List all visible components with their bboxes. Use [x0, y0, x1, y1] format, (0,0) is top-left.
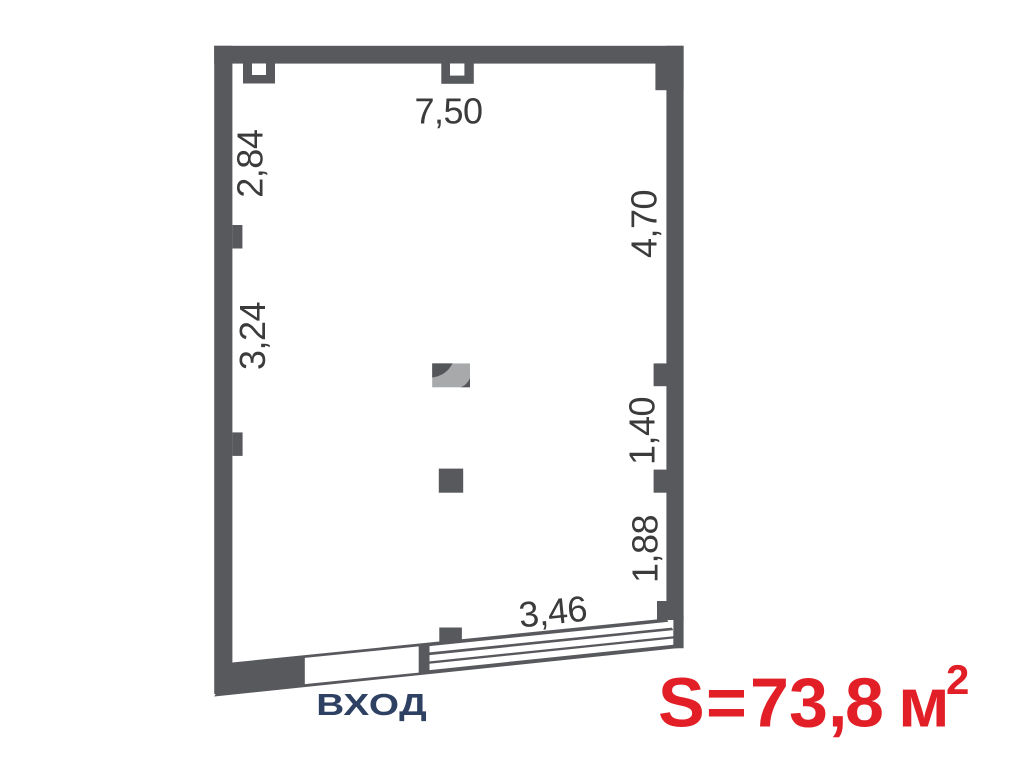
- svg-text:1,88: 1,88: [625, 515, 666, 583]
- svg-text:4,70: 4,70: [624, 190, 665, 258]
- svg-text:3,46: 3,46: [517, 588, 589, 636]
- svg-text:ВХОД: ВХОД: [316, 688, 427, 722]
- svg-text:3,24: 3,24: [232, 302, 273, 370]
- svg-text:7,50: 7,50: [414, 91, 482, 132]
- svg-text:2: 2: [946, 656, 969, 703]
- svg-text:S=73,8м: S=73,8м: [658, 664, 950, 742]
- svg-text:2,84: 2,84: [230, 130, 271, 198]
- svg-text:1,40: 1,40: [622, 397, 663, 465]
